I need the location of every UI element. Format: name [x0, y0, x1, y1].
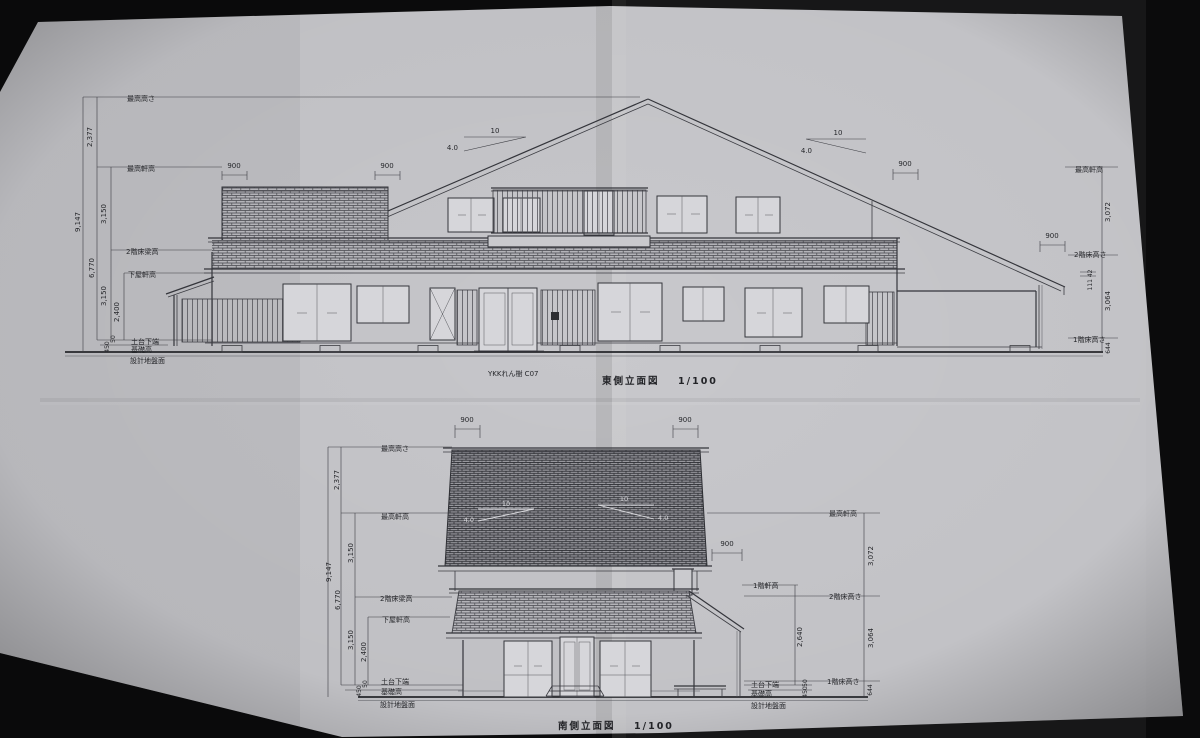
east-label-max-eave: 最高軒高	[127, 164, 155, 173]
east-title: 東側立面図	[601, 375, 660, 387]
east-label-sill: 土台下端	[131, 337, 159, 346]
east-dim-lower: 3,150	[100, 286, 108, 306]
balcony-slab	[488, 236, 650, 247]
east-dim-overhang-4: 900	[1045, 232, 1058, 240]
east-slope-rise-left: 4.0	[447, 144, 458, 152]
east-slope-run-right: 10	[834, 129, 843, 137]
window	[598, 283, 662, 341]
east-dim-r-top: 3,072	[1104, 202, 1112, 222]
east-scale: 1/100	[678, 376, 718, 387]
east-dim-upper: 3,150	[100, 204, 108, 224]
east-label-foundation: 基礎高	[131, 345, 152, 354]
south-dim-base-s-r: 50	[802, 679, 809, 687]
drawing-sheet-photo: 最高高さ 最高軒高 2階床梁高 下屋軒高 土台下端 基礎高 設計地盤面 2,37…	[0, 0, 1200, 738]
east-dim-mid: 6,770	[88, 258, 96, 278]
east-slope-rise-right: 4.0	[801, 147, 812, 155]
south-label-max-height: 最高高さ	[381, 444, 409, 453]
window	[448, 198, 494, 232]
south-dim-mid: 6,770	[334, 590, 342, 610]
south-main-roof: 10 4.0 10 4.0	[438, 448, 712, 571]
south-dim-overhang-1: 900	[460, 416, 473, 424]
south-label-foundation: 基礎高	[381, 687, 402, 696]
south-dim-r-base: 644	[867, 684, 874, 696]
south-scale: 1/100	[634, 721, 674, 732]
east-door-product-note: YKKれん樹 C07	[487, 369, 538, 378]
south-dim-base-s: 50	[362, 680, 369, 688]
south-slope-rise-right: 4.0	[658, 514, 668, 522]
south-label-lower-eave: 下屋軒高	[382, 615, 410, 624]
south-label-sill: 土台下端	[381, 677, 409, 686]
south-slope-run-right: 10	[620, 495, 628, 503]
south-title: 南側立面図	[558, 720, 616, 732]
east-dim-eave-note: 111 42	[1087, 269, 1094, 290]
entrance-door	[560, 637, 594, 697]
south-dim-upper: 3,150	[347, 543, 355, 563]
porch-fence	[182, 299, 300, 342]
window	[683, 287, 724, 321]
window	[283, 284, 351, 341]
east-label-fl2: 2階床高さ	[1074, 250, 1106, 259]
south-label-ground-r: 設計地盤面	[751, 701, 786, 710]
south-dim-total: 9,147	[325, 562, 333, 582]
entrance-door	[474, 288, 544, 351]
east-label-max-eave-r: 最高軒高	[1075, 165, 1103, 174]
window	[824, 286, 869, 323]
east-slope-run-left: 10	[491, 127, 500, 135]
east-dim-r-mid: 3,064	[1104, 290, 1112, 311]
window	[504, 641, 552, 697]
south-slope-run-left: 10	[502, 500, 510, 508]
east-dim-overhang-2: 900	[380, 162, 393, 170]
east-dim-r-base: 644	[1105, 342, 1112, 354]
east-dim-total: 9,147	[74, 212, 82, 232]
south-label-ground: 設計地盤面	[380, 700, 415, 709]
wall-box	[551, 312, 559, 320]
south-label-max-eave-r: 最高軒高	[829, 509, 857, 518]
window	[357, 286, 409, 323]
east-label-ground: 設計地盤面	[130, 356, 165, 365]
east-dim-overhang-1: 900	[227, 162, 240, 170]
window	[745, 288, 802, 337]
south-dim-overhang-3: 900	[720, 540, 733, 548]
east-dim-top: 2,377	[86, 127, 94, 147]
south-label-fl1: 1階床高さ	[827, 677, 859, 686]
east-label-fl2-beam: 2階床梁高	[126, 247, 158, 256]
east-label-max-height: 最高高さ	[127, 94, 155, 103]
east-dim-base-s: 50	[110, 335, 117, 343]
south-label-fl2: 2階床高さ	[829, 592, 861, 601]
east-label-fl1: 1階床高さ	[1073, 335, 1105, 344]
south-dim-eave1: 2,640	[796, 627, 804, 647]
photo-of-elevation-drawings: 最高高さ 最高軒高 2階床梁高 下屋軒高 土台下端 基礎高 設計地盤面 2,37…	[0, 0, 1200, 738]
south-dim-overhang-2: 900	[678, 416, 691, 424]
window	[600, 641, 651, 697]
east-label-lower-eave: 下屋軒高	[128, 270, 156, 279]
window	[736, 197, 780, 233]
south-dim-r-mid: 3,064	[867, 627, 875, 648]
south-dim-top: 2,377	[333, 470, 341, 490]
window	[657, 196, 707, 233]
south-slope-rise-left: 4.0	[464, 516, 474, 524]
south-label-foundation-r: 基礎高	[751, 689, 772, 698]
balcony-railing	[493, 190, 646, 233]
east-balcony	[488, 188, 650, 247]
south-label-fl2-beam: 2階床梁高	[380, 594, 412, 603]
south-label-max-eave: 最高軒高	[381, 512, 409, 521]
south-dim-lower: 3,150	[347, 630, 355, 650]
south-dim-base-r: 450	[802, 686, 809, 698]
south-label-eave1: 1階軒高	[753, 581, 778, 590]
glazed-side-door	[430, 288, 455, 340]
south-dim-story1: 2,400	[360, 642, 368, 662]
south-label-sill-r: 土台下端	[751, 680, 779, 689]
east-dim-overhang-3: 900	[898, 160, 911, 168]
south-dim-r-top: 3,072	[867, 546, 875, 566]
east-dim-story1: 2,400	[113, 302, 121, 322]
